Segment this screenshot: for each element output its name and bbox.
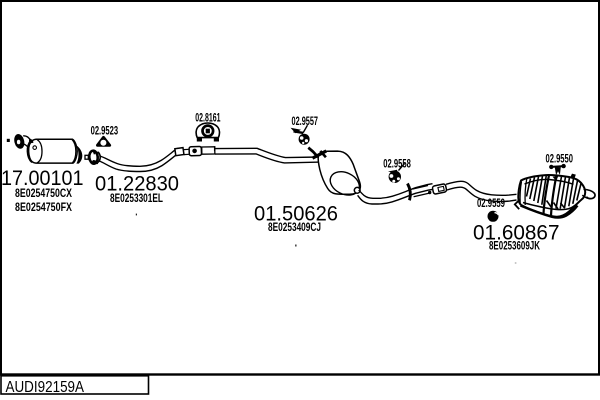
svg-text:02.9558: 02.9558 [383,158,411,170]
svg-text:02.9559: 02.9559 [477,198,505,210]
svg-text:8E0253609JK: 8E0253609JK [489,241,540,253]
svg-text:AUDI92159A: AUDI92159A [6,379,85,396]
svg-text:8E0254750FX: 8E0254750FX [15,202,72,214]
svg-text:17.00101: 17.00101 [1,167,84,190]
svg-text:02.9523: 02.9523 [91,125,119,137]
svg-text:8E0253301EL: 8E0253301EL [110,193,163,205]
svg-text:02.9550: 02.9550 [546,153,574,165]
svg-text:8E0254750CX: 8E0254750CX [15,188,72,200]
svg-text:02.8161: 02.8161 [195,113,221,125]
svg-text:02.9557: 02.9557 [292,116,319,128]
svg-text:8E0253409CJ: 8E0253409CJ [268,222,321,234]
